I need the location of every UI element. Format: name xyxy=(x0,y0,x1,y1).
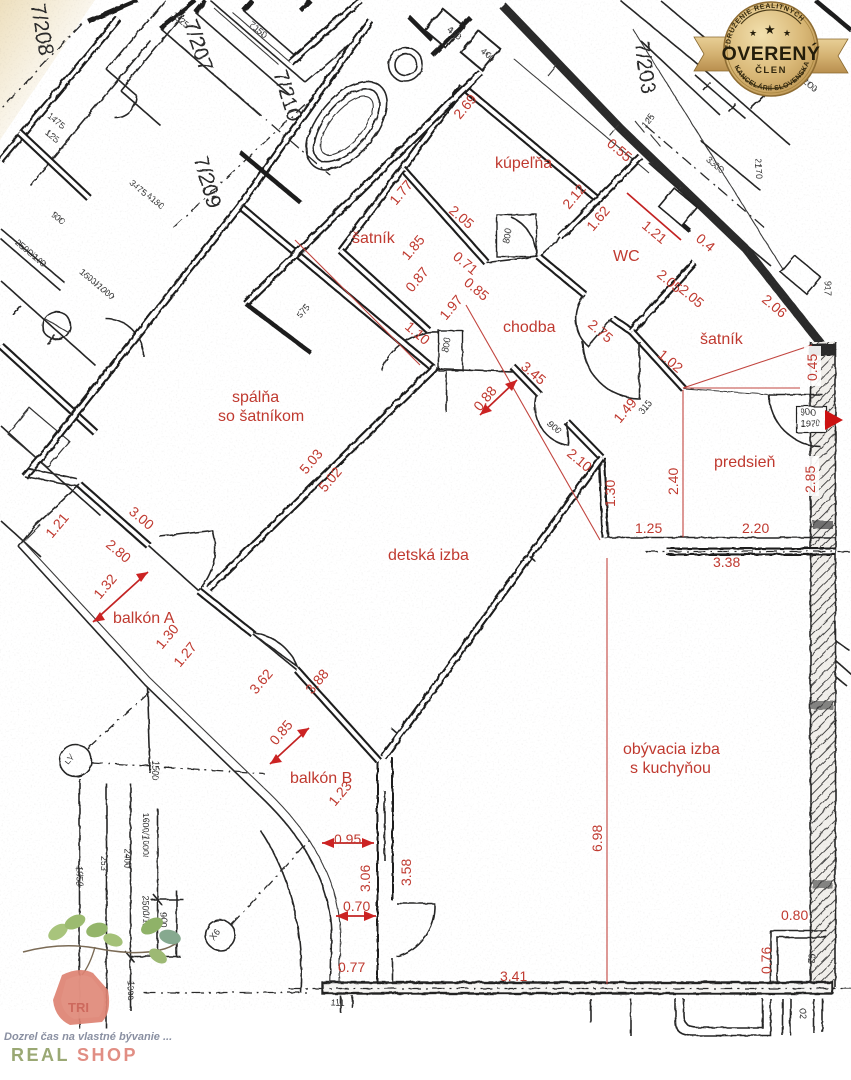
svg-text:★: ★ xyxy=(764,22,776,37)
svg-text:Dozrel čas na vlastné bývanie: Dozrel čas na vlastné bývanie ... xyxy=(4,1031,172,1043)
svg-text:SHOP: SHOP xyxy=(77,1045,138,1065)
svg-text:REAL: REAL xyxy=(11,1045,70,1065)
svg-text:OVERENÝ: OVERENÝ xyxy=(722,41,821,65)
svg-text:TRI: TRI xyxy=(68,1000,89,1015)
svg-text:★: ★ xyxy=(783,28,791,38)
svg-text:ČLEN: ČLEN xyxy=(755,64,787,76)
svg-text:★: ★ xyxy=(749,28,757,38)
